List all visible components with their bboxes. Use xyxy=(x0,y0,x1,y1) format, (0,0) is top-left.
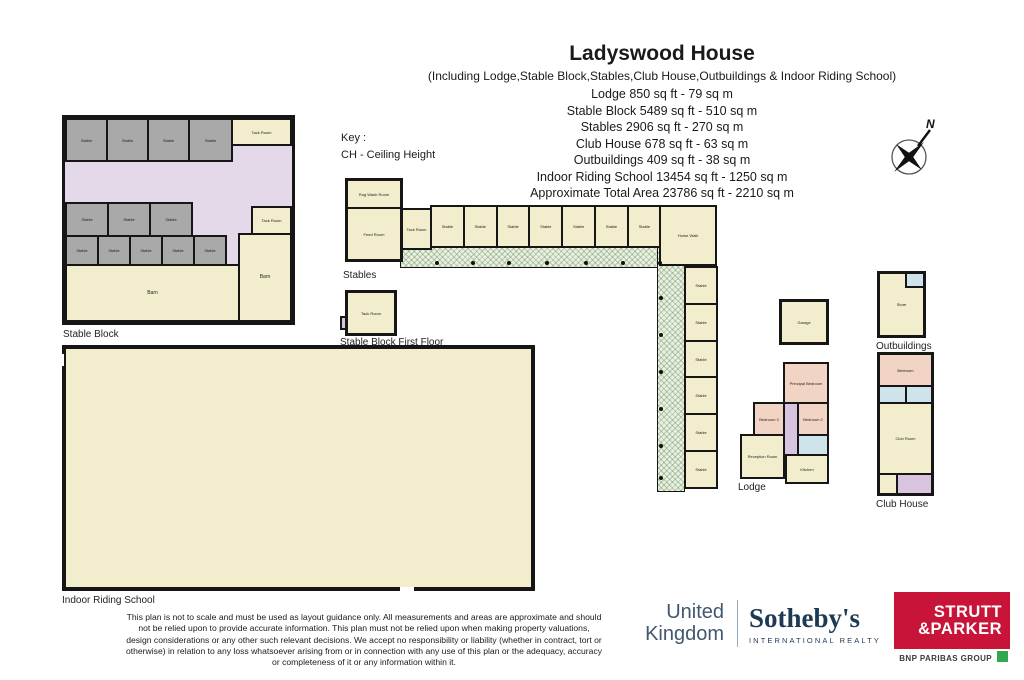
sothebys-brand: Sotheby's xyxy=(749,603,881,633)
post-dot xyxy=(659,476,663,480)
post-dot xyxy=(435,261,439,265)
room-stable: Stable xyxy=(686,305,716,342)
disclaimer-line: or completeness of it or any information… xyxy=(88,657,640,668)
room-stable: Stable xyxy=(193,235,227,266)
disclaimer-line: otherwise) in relation to any loss whats… xyxy=(88,646,640,657)
room-bedroom-3: Bedroom 3 xyxy=(753,402,785,436)
post-dot xyxy=(545,261,549,265)
post-dot xyxy=(621,261,625,265)
room-stable: Stable xyxy=(432,207,465,246)
room-barn: Barn xyxy=(65,264,240,322)
logo-divider xyxy=(737,600,738,647)
room-club-room: Club Room xyxy=(880,404,931,475)
wall-divider xyxy=(905,387,907,402)
label-club-house: Club House xyxy=(876,499,928,510)
post-dot xyxy=(659,407,663,411)
strutt-line1: STRUTT xyxy=(934,604,1002,621)
compass-north-label: N xyxy=(926,117,935,131)
room-bathroom xyxy=(880,387,931,404)
room-stable: Stable xyxy=(686,378,716,415)
united-kingdom-logo: United Kingdom xyxy=(638,601,724,645)
key-item-ceiling-height: CH - Ceiling Height xyxy=(341,147,435,164)
area-outbuildings: Outbuildings 409 sq ft - 38 sq m xyxy=(388,152,936,169)
room-bathroom xyxy=(797,434,829,456)
label-outbuildings: Outbuildings xyxy=(876,341,932,352)
room-stable: Stable xyxy=(65,118,108,162)
post-dot xyxy=(659,370,663,374)
club-house-bottom-row xyxy=(880,475,931,493)
strutt-parker-logo: STRUTT &PARKER xyxy=(894,592,1010,649)
label-stables: Stables xyxy=(343,270,376,281)
plan-outbuildings: Store xyxy=(877,271,926,338)
uk-line2: Kingdom xyxy=(638,623,724,645)
room-tack-room: Tack Room xyxy=(251,206,292,235)
disclaimer-line: design considerations or any other such … xyxy=(88,635,640,646)
compass-icon: N xyxy=(884,116,938,182)
room-stable: Stable xyxy=(686,415,716,452)
post-dot xyxy=(658,261,662,265)
key-title: Key : xyxy=(341,130,435,147)
area-riding-school: Indoor Riding School 13454 sq ft - 1250 … xyxy=(388,169,936,186)
room-stable: Stable xyxy=(498,207,531,246)
post-dot xyxy=(659,296,663,300)
post-dot xyxy=(659,333,663,337)
room-stable: Stable xyxy=(465,207,498,246)
plan-stable-block-first-floor: Tack Room xyxy=(345,290,397,336)
room-stable: Stable xyxy=(65,202,109,237)
room-kitchen: Kitchen xyxy=(785,454,829,484)
bnp-paribas-logo-icon xyxy=(997,651,1008,662)
header: Ladyswood House (Including Lodge,Stable … xyxy=(388,42,936,202)
room-bedroom-2: Bedroom 2 xyxy=(797,402,829,436)
label-lodge: Lodge xyxy=(738,482,766,493)
room-reception: Reception Room xyxy=(740,434,785,479)
room-stable: Stable xyxy=(106,118,149,162)
room-barn: Barn xyxy=(238,233,292,322)
room-garage: Garage xyxy=(779,299,829,345)
room-stable: Stable xyxy=(147,118,190,162)
plan-club-house: Bedroom Club Room xyxy=(877,352,934,496)
room-horse-walk: Horse Walk xyxy=(659,205,717,266)
room-stable: Stable xyxy=(149,202,193,237)
room-store-small xyxy=(880,475,898,493)
plan-indoor-riding-school xyxy=(62,345,535,591)
room-stable: Stable xyxy=(161,235,195,266)
room-stable: Stable xyxy=(629,207,660,246)
subtitle: (Including Lodge,Stable Block,Stables,Cl… xyxy=(388,69,936,83)
room-wc xyxy=(905,274,923,288)
disclaimer: This plan is not to scale and must be us… xyxy=(88,612,640,668)
room-stable: Stable xyxy=(530,207,563,246)
post-dot xyxy=(659,444,663,448)
key-legend: Key : CH - Ceiling Height xyxy=(341,130,435,164)
post-dot xyxy=(584,261,588,265)
post-dot xyxy=(507,261,511,265)
room-stable: Stable xyxy=(129,235,163,266)
area-club-house: Club House 678 sq ft - 63 sq m xyxy=(388,136,936,153)
room-stable: Stable xyxy=(97,235,131,266)
room-tack-room: Tack Room xyxy=(231,118,292,146)
area-total: Approximate Total Area 23786 sq ft - 221… xyxy=(388,185,936,202)
floorplan-page: Ladyswood House (Including Lodge,Stable … xyxy=(0,0,1024,680)
door-gap xyxy=(60,354,64,366)
area-stables: Stables 2906 sq ft - 270 sq m xyxy=(388,119,936,136)
plan-stable-block: Stable Stable Stable Stable Tack Room St… xyxy=(62,115,295,325)
bnp-paribas-group-label: BNP PARIBAS GROUP xyxy=(858,654,992,663)
stables-row: Stable Stable Stable Stable Stable Stabl… xyxy=(430,205,662,248)
room-stable: Stable xyxy=(563,207,596,246)
disclaimer-line: not be relied upon to provide accurate i… xyxy=(88,623,640,634)
strutt-line2: &PARKER xyxy=(918,621,1002,638)
room-bedroom: Bedroom xyxy=(880,355,931,387)
stables-left-building: Rug Wash Room Feed Room xyxy=(345,178,403,262)
room-stable: Stable xyxy=(65,235,99,266)
room-stable: Stable xyxy=(686,342,716,379)
sothebys-subtitle: INTERNATIONAL REALTY xyxy=(749,636,881,645)
sothebys-logo: Sotheby's INTERNATIONAL REALTY xyxy=(749,603,881,645)
disclaimer-line: This plan is not to scale and must be us… xyxy=(88,612,640,623)
room-tack-room: Tack Room xyxy=(401,208,432,250)
post-dot xyxy=(471,261,475,265)
area-stable-block: Stable Block 5489 sq ft - 510 sq m xyxy=(388,103,936,120)
room-principal-bedroom: Principal Bedroom xyxy=(783,362,829,404)
label-stable-block: Stable Block xyxy=(63,329,119,340)
room-entry xyxy=(898,475,931,493)
uk-line1: United xyxy=(638,601,724,623)
room-feed-room: Feed Room xyxy=(348,209,400,259)
covered-walkway xyxy=(657,246,685,492)
door-gap xyxy=(400,587,414,591)
room-rug-wash: Rug Wash Room xyxy=(348,181,400,209)
room-stable: Stable xyxy=(107,202,151,237)
area-lodge: Lodge 850 sq ft - 79 sq m xyxy=(388,86,936,103)
label-indoor-riding-school: Indoor Riding School xyxy=(62,595,155,606)
room-stable: Stable xyxy=(188,118,233,162)
room-stable: Stable xyxy=(596,207,629,246)
stables-wing: Stable Stable Stable Stable Stable Stabl… xyxy=(684,266,718,489)
page-title: Ladyswood House xyxy=(388,42,936,66)
room-stable: Stable xyxy=(686,268,716,305)
room-stable: Stable xyxy=(686,452,716,487)
